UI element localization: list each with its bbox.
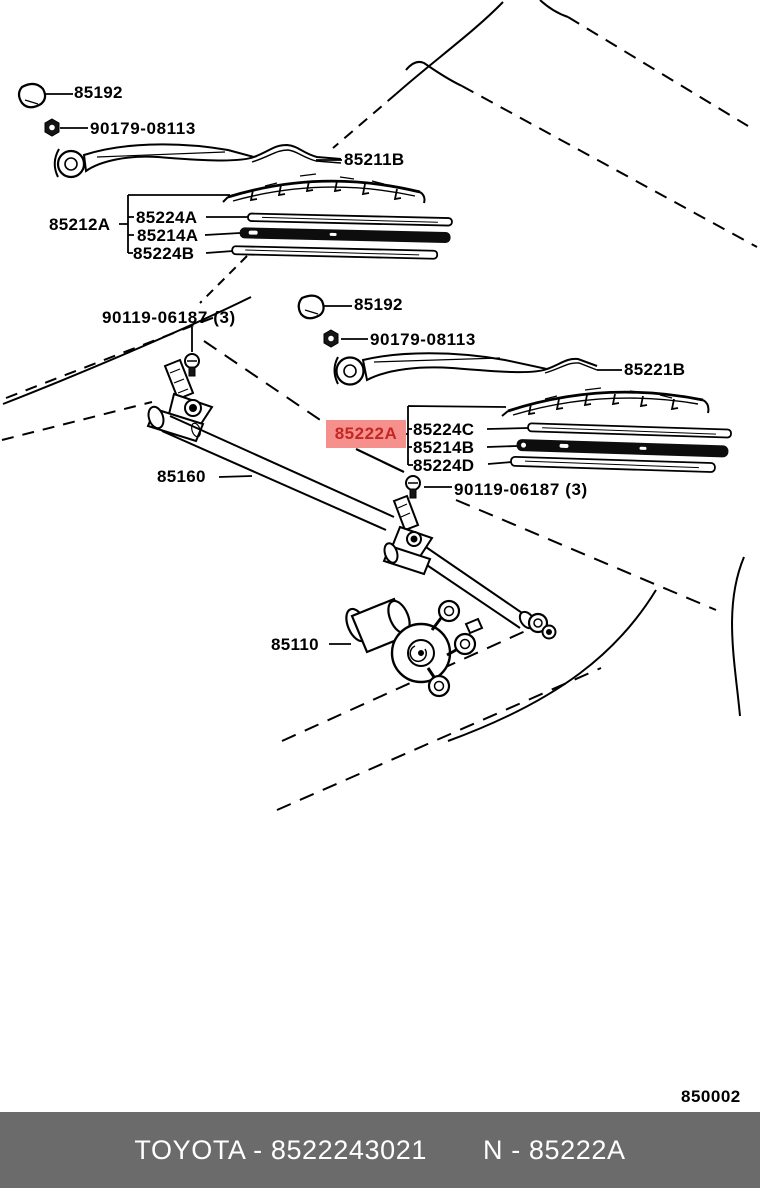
label-linkage[interactable]: 85160 — [157, 468, 206, 485]
blade-strips-2 — [511, 423, 731, 473]
pivot-nut-2 — [324, 330, 338, 347]
label-blade-top-1[interactable]: 85224A — [136, 209, 197, 226]
label-nut-top[interactable]: 90179-08113 — [90, 120, 196, 137]
label-blade-top-2[interactable]: 85214A — [137, 227, 198, 244]
wiper-arm-1 — [55, 144, 341, 177]
label-motor[interactable]: 85110 — [271, 636, 319, 653]
highlighted-part-number: 85222A — [335, 424, 398, 444]
label-cap-mid[interactable]: 85192 — [354, 296, 403, 313]
wiper-blade-2 — [502, 388, 708, 416]
blade-strips-1 — [232, 213, 452, 259]
highlighted-part-box[interactable]: 85222A — [326, 420, 406, 448]
figure-number: 850002 — [681, 1087, 741, 1107]
parts-diagram-page: 85192 90179-08113 85211B 85212A 85224A 8… — [0, 0, 760, 1188]
wiper-motor — [342, 598, 482, 696]
footer-bar: TOYOTA - 8522243021 N - 85222A — [0, 1112, 760, 1188]
footer-part-code: TOYOTA - 8522243021 — [134, 1135, 427, 1166]
label-blade-mid-2[interactable]: 85214B — [413, 439, 474, 456]
label-pivot-bolt-mid[interactable]: 90119-06187 (3) — [454, 481, 588, 498]
label-blade-top-3[interactable]: 85224B — [133, 245, 194, 262]
pivot-nut-1 — [45, 119, 59, 136]
label-arm-top[interactable]: 85211B — [344, 151, 404, 168]
label-arm-mid[interactable]: 85221B — [624, 361, 685, 378]
label-blade-group-top[interactable]: 85212A — [49, 216, 110, 233]
pivot-assembly-1 — [146, 354, 212, 441]
label-blade-mid-1[interactable]: 85224C — [413, 421, 474, 438]
label-pivot-bolt-left[interactable]: 90119-06187 (3) — [102, 309, 236, 326]
linkage-end-joint — [517, 609, 556, 638]
label-nut-mid[interactable]: 90179-08113 — [370, 331, 476, 348]
pivot-cap-2 — [299, 296, 324, 319]
label-cap-top[interactable]: 85192 — [74, 84, 123, 101]
label-blade-mid-3[interactable]: 85224D — [413, 457, 474, 474]
wiper-blade-1 — [223, 174, 425, 203]
footer-part-number: N - 85222A — [483, 1135, 626, 1166]
pivot-cap-1 — [19, 84, 45, 107]
pivot-assembly-2 — [382, 476, 432, 574]
wiper-arm-2 — [335, 353, 598, 384]
